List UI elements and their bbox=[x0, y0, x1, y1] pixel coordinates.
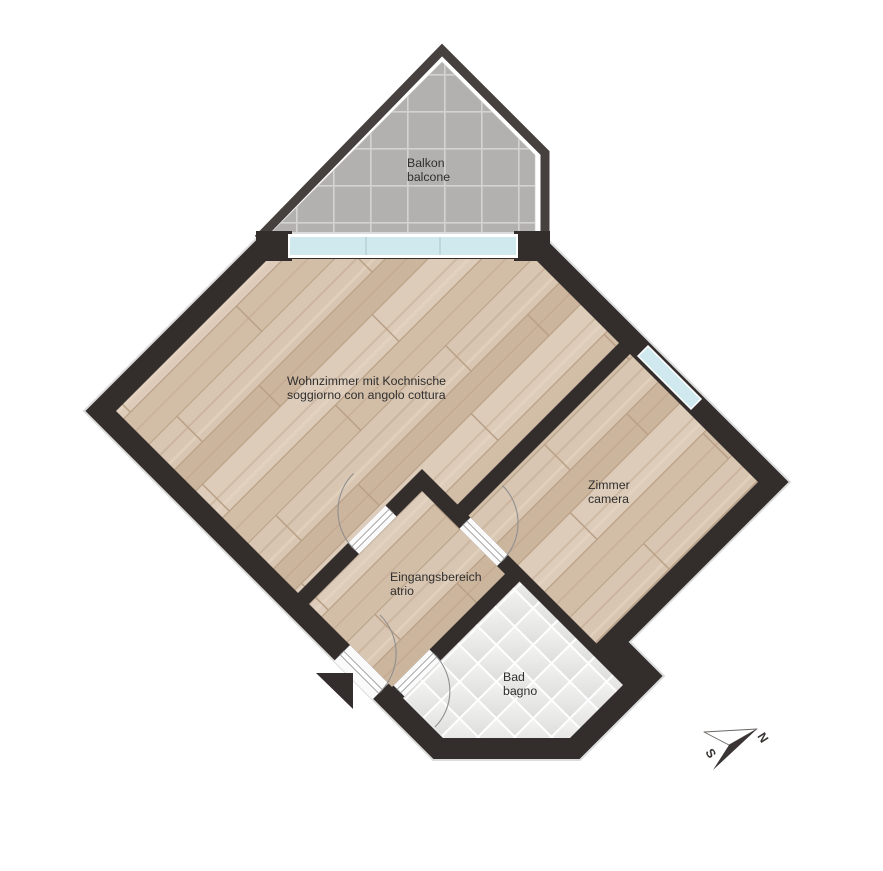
compass: N S bbox=[702, 729, 771, 770]
label-living-it: soggiorno con angolo cottura bbox=[287, 388, 446, 402]
floor-plan-svg: Balkon balcone Wohnzimmer mit Kochnische… bbox=[0, 0, 883, 871]
balcony-wall-stub-right bbox=[514, 231, 550, 261]
balcony-wall-stub-left bbox=[256, 231, 292, 261]
label-balcony-it: balcone bbox=[407, 170, 450, 184]
balcony-window-wall bbox=[288, 234, 518, 258]
floor-plan-page: Balkon balcone Wohnzimmer mit Kochnische… bbox=[0, 0, 883, 871]
label-entrance-it: atrio bbox=[390, 584, 414, 598]
label-living-de: Wohnzimmer mit Kochnische bbox=[287, 374, 446, 388]
entrance-marker-triangle bbox=[316, 673, 353, 709]
label-bedroom-de: Zimmer bbox=[588, 478, 630, 492]
balcony-window-glass bbox=[290, 237, 516, 255]
compass-north-label: N bbox=[754, 730, 771, 745]
label-entrance-de: Eingangsbereich bbox=[390, 570, 482, 584]
label-bath-de: Bad bbox=[503, 670, 525, 684]
label-bath-it: bagno bbox=[503, 684, 537, 698]
compass-south-label: S bbox=[702, 746, 718, 760]
label-balcony-de: Balkon bbox=[407, 156, 445, 170]
compass-needle-outline bbox=[704, 729, 757, 745]
balcony bbox=[258, 50, 545, 239]
label-bedroom-it: camera bbox=[588, 492, 629, 506]
